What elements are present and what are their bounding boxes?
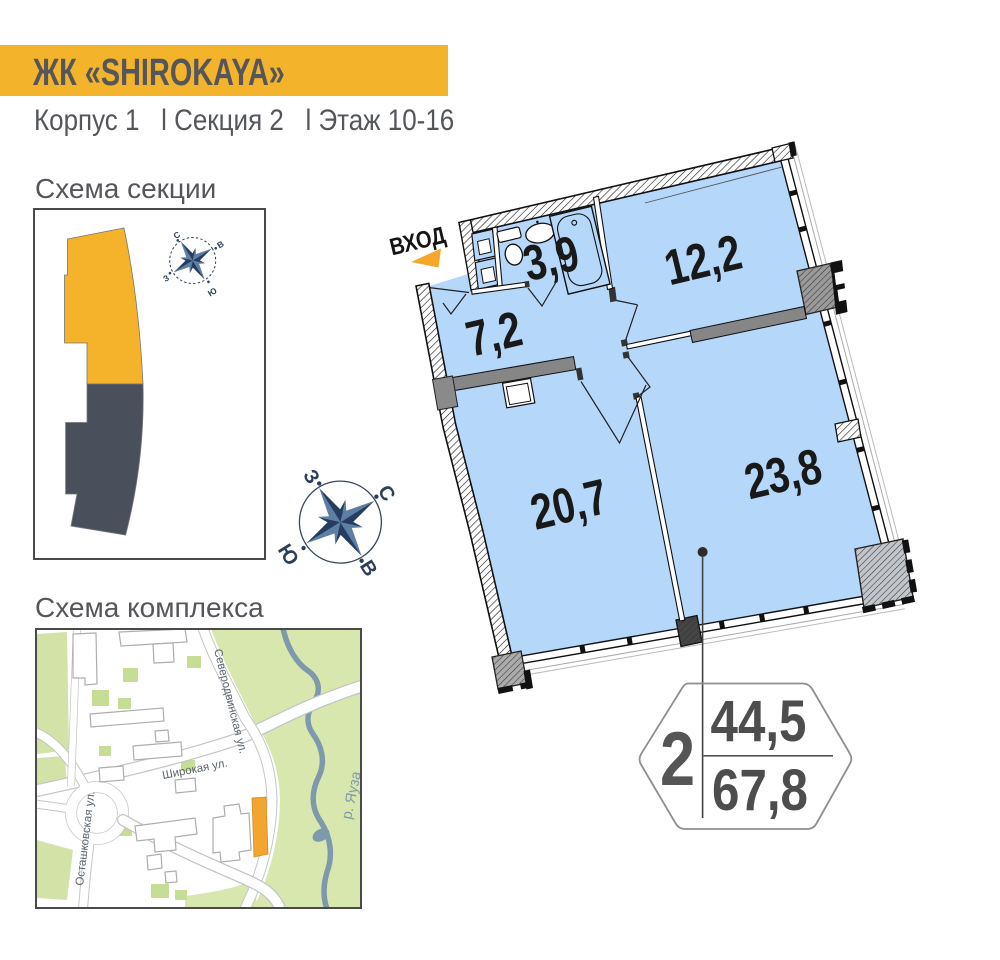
svg-text:2: 2 <box>660 716 695 801</box>
svg-text:44,5: 44,5 <box>711 689 807 754</box>
svg-text:67,8: 67,8 <box>712 758 808 823</box>
